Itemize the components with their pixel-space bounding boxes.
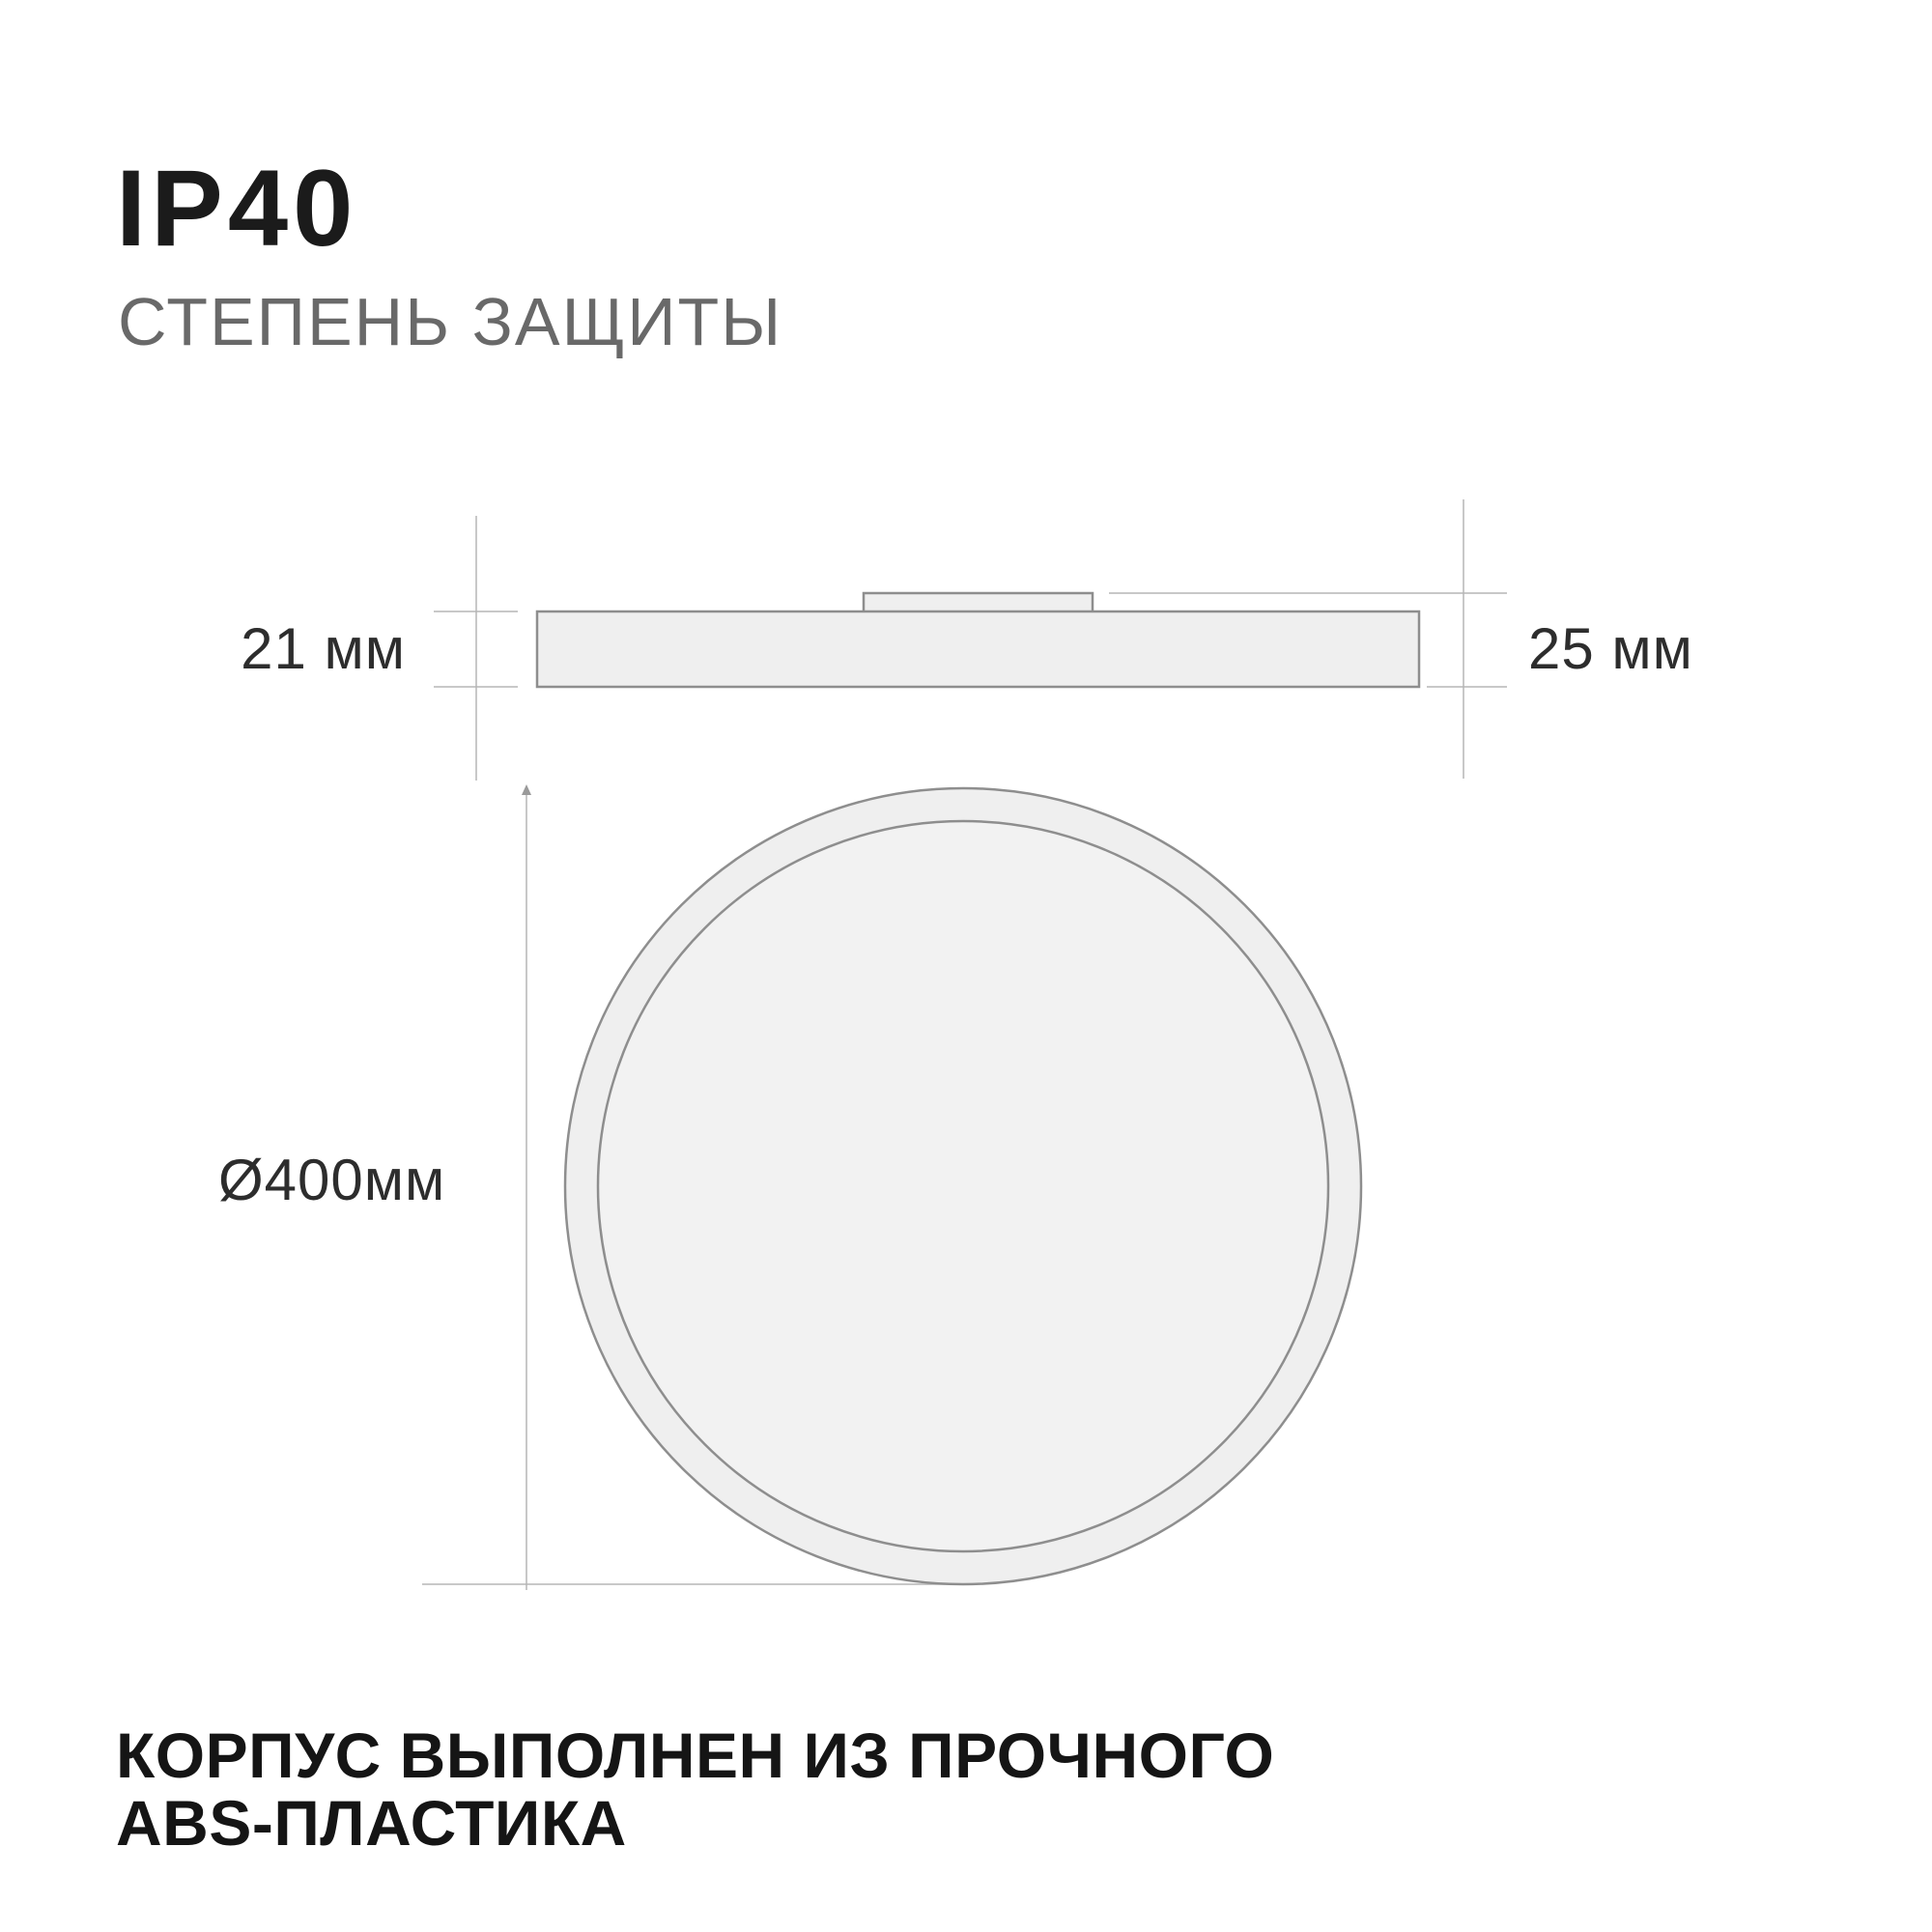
technical-drawing (0, 0, 1932, 1932)
dim-arrow-tip (522, 784, 531, 795)
lamp-inner-circle (598, 821, 1328, 1551)
material-note-line-1: КОРПУС ВЫПОЛНЕН ИЗ ПРОЧНОГО (116, 1721, 1274, 1789)
overall-height-dimension-label: 25 мм (1528, 615, 1693, 683)
lamp-mounting-plate (864, 593, 1093, 612)
diameter-dimension-label: Ø400мм (218, 1147, 445, 1214)
body-height-dimension-label: 21 мм (135, 615, 406, 683)
infographic-page: IP40 СТЕПЕНЬ ЗАЩИТЫ 21 мм 25 мм Ø400мм К… (0, 0, 1932, 1932)
lamp-body-side-view (537, 611, 1419, 687)
material-note: КОРПУС ВЫПОЛНЕН ИЗ ПРОЧНОГО ABS-ПЛАСТИКА (116, 1721, 1274, 1857)
material-note-line-2: ABS-ПЛАСТИКА (116, 1789, 1274, 1857)
